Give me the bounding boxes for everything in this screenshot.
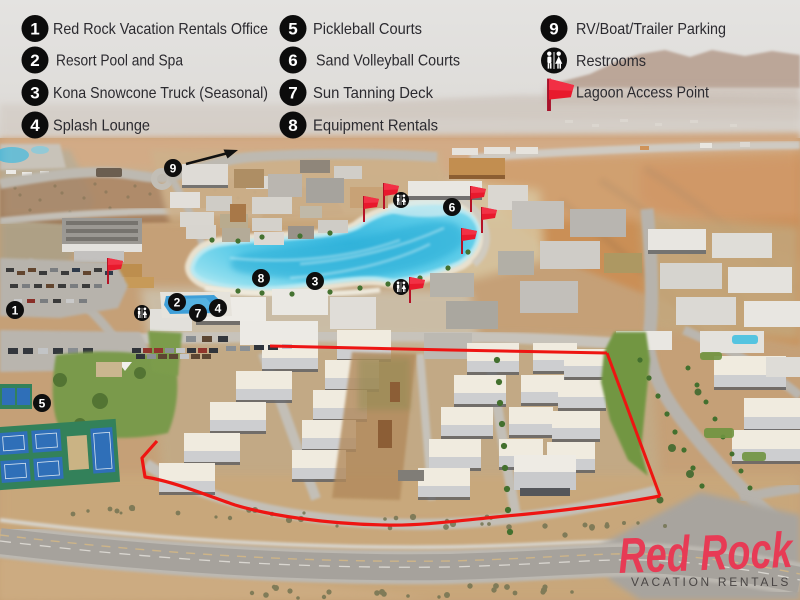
svg-text:Sun Tanning Deck: Sun Tanning Deck: [313, 85, 434, 102]
svg-text:2: 2: [30, 51, 39, 70]
svg-text:Resort Pool and Spa: Resort Pool and Spa: [56, 53, 183, 70]
svg-text:6: 6: [449, 200, 456, 214]
svg-text:VACATION RENTALS: VACATION RENTALS: [631, 577, 791, 589]
svg-text:3: 3: [312, 274, 319, 288]
svg-text:8: 8: [258, 271, 265, 285]
svg-text:1: 1: [30, 20, 39, 39]
svg-text:7: 7: [195, 306, 202, 320]
svg-text:6: 6: [288, 51, 297, 70]
svg-text:9: 9: [170, 161, 177, 175]
svg-text:Red Rock Vacation Rentals Offi: Red Rock Vacation Rentals Office: [53, 21, 268, 38]
svg-text:4: 4: [30, 116, 40, 135]
svg-text:1: 1: [12, 303, 19, 317]
svg-text:2: 2: [174, 295, 181, 309]
svg-text:Lagoon Access Point: Lagoon Access Point: [576, 85, 709, 102]
svg-text:Kona Snowcone Truck (Seasonal): Kona Snowcone Truck (Seasonal): [53, 85, 268, 102]
svg-text:9: 9: [549, 20, 558, 39]
svg-text:3: 3: [30, 84, 39, 103]
svg-text:Pickleball Courts: Pickleball Courts: [313, 21, 422, 38]
svg-text:4: 4: [215, 301, 222, 315]
svg-text:Sand Volleyball Courts: Sand Volleyball Courts: [316, 53, 460, 70]
svg-text:Red Rock: Red Rock: [617, 522, 794, 584]
svg-text:Equipment Rentals: Equipment Rentals: [313, 118, 438, 135]
svg-text:RV/Boat/Trailer Parking: RV/Boat/Trailer Parking: [576, 21, 726, 38]
svg-text:5: 5: [288, 20, 297, 39]
svg-text:5: 5: [39, 396, 46, 410]
svg-text:Splash Lounge: Splash Lounge: [53, 118, 150, 135]
svg-text:8: 8: [288, 116, 297, 135]
svg-text:Restrooms: Restrooms: [576, 53, 646, 70]
svg-text:7: 7: [288, 84, 297, 103]
